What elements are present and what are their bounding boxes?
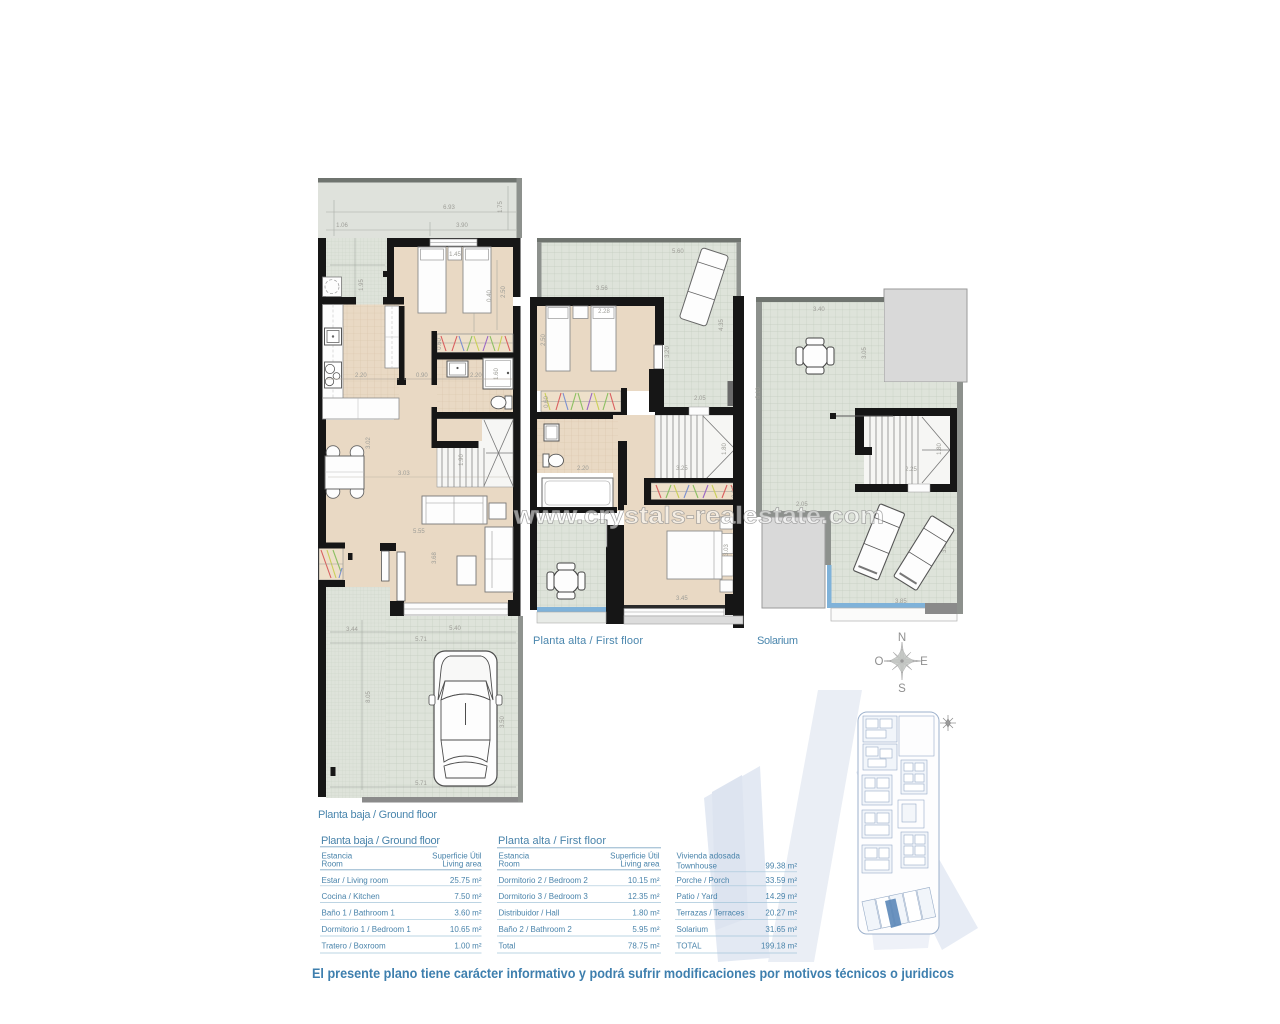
svg-text:1.80: 1.80 (937, 443, 943, 455)
svg-text:TOTAL: TOTAL (677, 942, 703, 951)
svg-text:Planta baja / Ground floor: Planta baja / Ground floor (318, 809, 437, 821)
svg-text:2.50: 2.50 (501, 286, 507, 298)
svg-text:3.45: 3.45 (676, 596, 688, 602)
svg-text:199.18 m²: 199.18 m² (761, 942, 797, 951)
svg-text:Porche / Porch: Porche / Porch (677, 876, 730, 885)
svg-text:14.29 m²: 14.29 m² (765, 892, 797, 901)
svg-text:2.20: 2.20 (577, 466, 589, 472)
svg-text:3.25: 3.25 (676, 466, 688, 472)
svg-text:3.90: 3.90 (456, 223, 468, 229)
svg-text:Dormitorio 1 / Bedroom 1: Dormitorio 1 / Bedroom 1 (322, 925, 412, 934)
svg-text:5.60: 5.60 (672, 249, 684, 255)
svg-text:2.28: 2.28 (598, 309, 610, 315)
svg-text:1.80 m²: 1.80 m² (632, 909, 659, 918)
svg-text:1.95: 1.95 (359, 279, 365, 291)
svg-text:3.60 m²: 3.60 m² (454, 909, 481, 918)
svg-text:Planta alta / First floor: Planta alta / First floor (498, 835, 606, 847)
svg-text:S: S (898, 683, 906, 695)
svg-text:Baño 1 / Bathroom 1: Baño 1 / Bathroom 1 (322, 909, 396, 918)
svg-text:Living area: Living area (620, 860, 660, 869)
svg-text:Solarium: Solarium (677, 925, 709, 934)
svg-text:E: E (920, 656, 928, 668)
svg-text:5.71: 5.71 (415, 781, 427, 787)
svg-text:2.50: 2.50 (541, 334, 547, 346)
svg-text:Room: Room (499, 860, 521, 869)
svg-text:1.06: 1.06 (336, 223, 348, 229)
svg-text:3.50: 3.50 (500, 716, 506, 728)
svg-text:Dormitorio 2 / Bedroom 2: Dormitorio 2 / Bedroom 2 (499, 876, 589, 885)
svg-text:Cocina / Kitchen: Cocina / Kitchen (322, 892, 380, 901)
svg-text:3.03: 3.03 (724, 544, 730, 556)
svg-text:Patio / Yard: Patio / Yard (677, 892, 718, 901)
svg-text:1.90: 1.90 (459, 454, 465, 466)
svg-text:3.68: 3.68 (432, 552, 438, 564)
svg-text:31.65 m²: 31.65 m² (765, 925, 797, 934)
svg-text:78.75 m²: 78.75 m² (628, 942, 660, 951)
svg-text:Townhouse: Townhouse (677, 862, 718, 871)
svg-text:Baño 2 / Bathroom 2: Baño 2 / Bathroom 2 (499, 925, 573, 934)
svg-text:20.27 m²: 20.27 m² (765, 909, 797, 918)
svg-text:Planta alta / First floor: Planta alta / First floor (533, 635, 643, 647)
svg-text:3.02: 3.02 (366, 437, 372, 449)
svg-text:8.05: 8.05 (366, 691, 372, 703)
svg-text:N: N (898, 632, 906, 644)
svg-text:0.60: 0.60 (544, 396, 550, 408)
svg-text:1.45: 1.45 (449, 252, 461, 258)
svg-text:Room: Room (322, 860, 344, 869)
svg-text:25.75 m²: 25.75 m² (450, 876, 482, 885)
svg-text:O: O (875, 656, 884, 668)
svg-text:0.60: 0.60 (437, 338, 443, 350)
svg-text:0.90: 0.90 (416, 373, 428, 379)
svg-text:Dormitorio 3 / Bedroom 3: Dormitorio 3 / Bedroom 3 (499, 892, 589, 901)
svg-text:Estar / Living room: Estar / Living room (322, 876, 389, 885)
svg-text:10.15 m²: 10.15 m² (628, 876, 660, 885)
svg-text:3.40: 3.40 (813, 307, 825, 313)
svg-text:Living area: Living area (442, 860, 482, 869)
svg-text:2.05: 2.05 (694, 396, 706, 402)
svg-text:Tratero / Boxroom: Tratero / Boxroom (322, 942, 387, 951)
svg-text:1.00 m²: 1.00 m² (454, 942, 481, 951)
svg-text:10.65 m²: 10.65 m² (450, 925, 482, 934)
svg-text:4.35: 4.35 (719, 319, 725, 331)
svg-text:Distribuidor / Hall: Distribuidor / Hall (499, 909, 560, 918)
svg-text:99.38 m²: 99.38 m² (765, 862, 797, 871)
svg-text:8.10: 8.10 (756, 387, 762, 399)
svg-text:2.20: 2.20 (355, 373, 367, 379)
svg-text:2.20: 2.20 (470, 373, 482, 379)
svg-text:3.05: 3.05 (862, 347, 868, 359)
svg-text:5.40: 5.40 (449, 626, 461, 632)
svg-text:12.35 m²: 12.35 m² (628, 892, 660, 901)
svg-text:3.56: 3.56 (596, 286, 608, 292)
svg-text:0.40: 0.40 (487, 290, 493, 302)
svg-text:1.60: 1.60 (494, 368, 500, 380)
svg-text:3.20: 3.20 (665, 346, 671, 358)
svg-text:2.25: 2.25 (905, 467, 917, 473)
svg-text:www.crystals-realestate.com: www.crystals-realestate.com (513, 503, 884, 530)
svg-text:5.55: 5.55 (413, 529, 425, 535)
svg-text:Planta baja / Ground floor: Planta baja / Ground floor (321, 835, 440, 847)
svg-text:3.44: 3.44 (346, 627, 358, 633)
svg-text:6.93: 6.93 (443, 205, 455, 211)
svg-text:Terrazas / Terraces: Terrazas / Terraces (677, 909, 745, 918)
svg-text:7.50 m²: 7.50 m² (454, 892, 481, 901)
svg-text:1.75: 1.75 (498, 201, 504, 213)
svg-text:5.95 m²: 5.95 m² (632, 925, 659, 934)
svg-text:El presente plano tiene caráct: El presente plano tiene carácter informa… (312, 965, 954, 981)
svg-text:Solarium: Solarium (757, 635, 798, 647)
svg-text:5.71: 5.71 (415, 637, 427, 643)
svg-text:1.80: 1.80 (722, 443, 728, 455)
svg-text:3.03: 3.03 (398, 471, 410, 477)
svg-text:33.59 m²: 33.59 m² (765, 876, 797, 885)
svg-text:Vivienda adosada: Vivienda adosada (677, 852, 741, 861)
svg-text:Total: Total (499, 942, 516, 951)
